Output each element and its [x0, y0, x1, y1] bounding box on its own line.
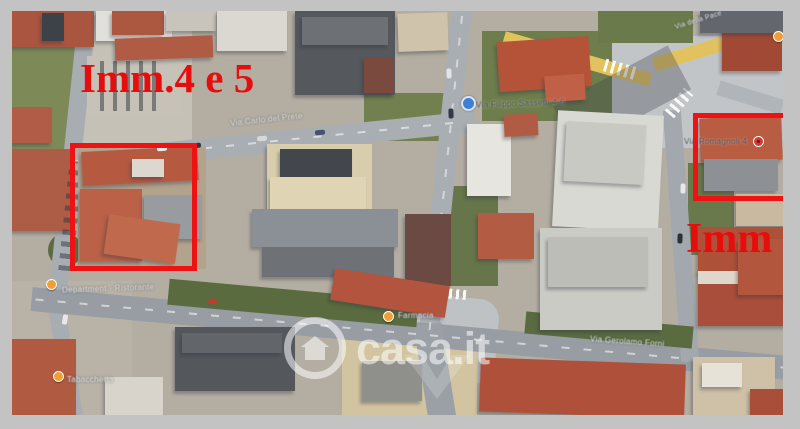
house-icon: [305, 347, 325, 360]
car: [315, 130, 325, 136]
building-roof: [563, 121, 646, 185]
car: [677, 233, 682, 243]
satellite-map: Via Carlo del Prete Via della Pace Via F…: [12, 11, 783, 415]
car: [208, 299, 218, 305]
building-roof: [302, 17, 388, 45]
orange-poi-pin-icon: [383, 311, 394, 322]
building-roof: [217, 11, 287, 51]
building-roof: [112, 11, 164, 35]
poi-label-pharmacy: Farmacia: [398, 311, 434, 320]
building-roof: [503, 113, 538, 137]
poi-label-tobacco: Tabaccheria: [67, 375, 113, 384]
building-roof: [478, 213, 534, 259]
building-roof: [166, 11, 216, 31]
street-label-top-road: Via Carlo del Prete: [230, 111, 303, 128]
building-roof: [42, 13, 64, 41]
blue-transit-dot-icon: [461, 96, 476, 111]
watermark-logo-circle: [284, 317, 346, 379]
car: [257, 136, 267, 142]
building-roof: [364, 57, 394, 93]
red-rectangle-right: [693, 113, 783, 201]
poi-label-restaurant: Department · Ristorante: [62, 282, 155, 294]
building-roof: [12, 149, 70, 231]
car: [446, 68, 451, 78]
building-roof: [105, 377, 163, 415]
orange-poi-pin-icon: [773, 31, 783, 42]
gray-border-frame: Via Carlo del Prete Via della Pace Via F…: [0, 0, 800, 429]
building-roof: [405, 214, 451, 286]
building-roof: [750, 389, 783, 415]
building-roof: [262, 247, 394, 277]
red-rectangle-left: [70, 143, 197, 271]
annotation-right-label: Imm: [686, 215, 772, 263]
building-roof: [252, 209, 398, 247]
orange-poi-pin-icon: [53, 371, 64, 382]
building-roof: [270, 177, 366, 213]
building-roof: [702, 363, 742, 387]
building-roof: [479, 357, 686, 415]
annotation-left-label: Imm.4 e 5: [80, 54, 254, 102]
orange-poi-pin-icon: [46, 279, 57, 290]
building-roof: [397, 12, 448, 52]
car: [448, 108, 453, 118]
building-roof: [548, 237, 648, 287]
building-roof: [12, 107, 52, 143]
building-roof: [182, 333, 282, 353]
car: [680, 183, 685, 193]
